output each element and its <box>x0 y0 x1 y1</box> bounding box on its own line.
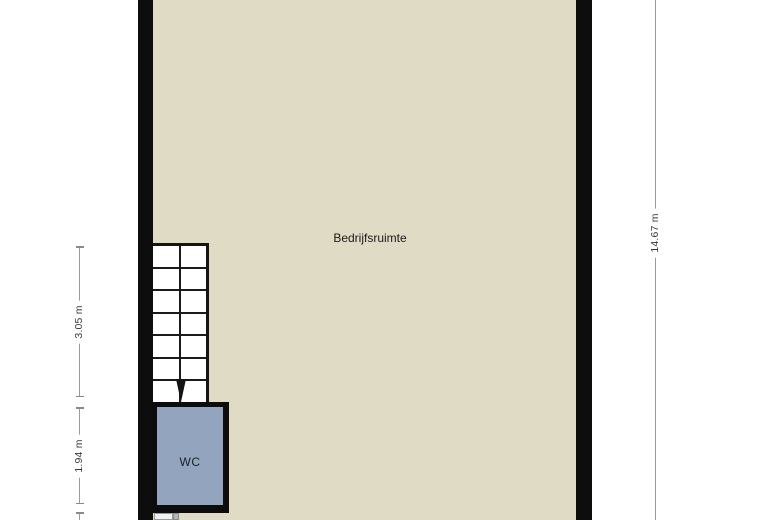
stair-tread <box>181 246 207 267</box>
dimension-value: 1.94 m <box>73 434 85 477</box>
stair-tread <box>153 291 179 312</box>
wc-room: WC <box>157 407 223 505</box>
floorplan-canvas: Bedrijfsruimte WC 3.05 m <box>0 0 780 520</box>
dimension-tick <box>76 407 84 409</box>
stair-tread <box>153 269 179 290</box>
dimension-value: 3.05 m <box>73 300 85 343</box>
stair-tread <box>181 291 207 312</box>
stair-tread <box>153 246 179 267</box>
wc-door-leaf <box>154 513 173 520</box>
stair-tread <box>153 336 179 357</box>
stair-tread <box>181 269 207 290</box>
dimension-wc: 1.94 m <box>75 407 84 504</box>
stair-tread <box>153 359 179 380</box>
dimension-tick <box>76 512 84 514</box>
stair-down-arrow-icon <box>176 379 186 402</box>
stair-tread <box>181 359 207 380</box>
dimension-tick <box>76 246 84 248</box>
wc-door-jamb <box>173 513 179 520</box>
dimension-tick <box>76 503 84 505</box>
dimension-tick <box>76 396 84 398</box>
staircase <box>153 243 209 402</box>
stair-tread <box>153 381 179 402</box>
stair-tread <box>181 336 207 357</box>
left-outer-wall <box>138 0 153 520</box>
room-label: Bedrijfsruimte <box>333 231 406 245</box>
dimension-building-depth: 14.67 m <box>651 0 660 520</box>
dimension-line <box>655 0 657 520</box>
dimension-partial <box>75 512 84 520</box>
dimension-stairs: 3.05 m <box>75 246 84 397</box>
stair-tread <box>153 314 179 335</box>
dimension-value: 14.67 m <box>649 208 661 257</box>
wc-label: WC <box>180 443 201 469</box>
right-outer-wall <box>576 0 592 520</box>
stair-tread <box>181 314 207 335</box>
